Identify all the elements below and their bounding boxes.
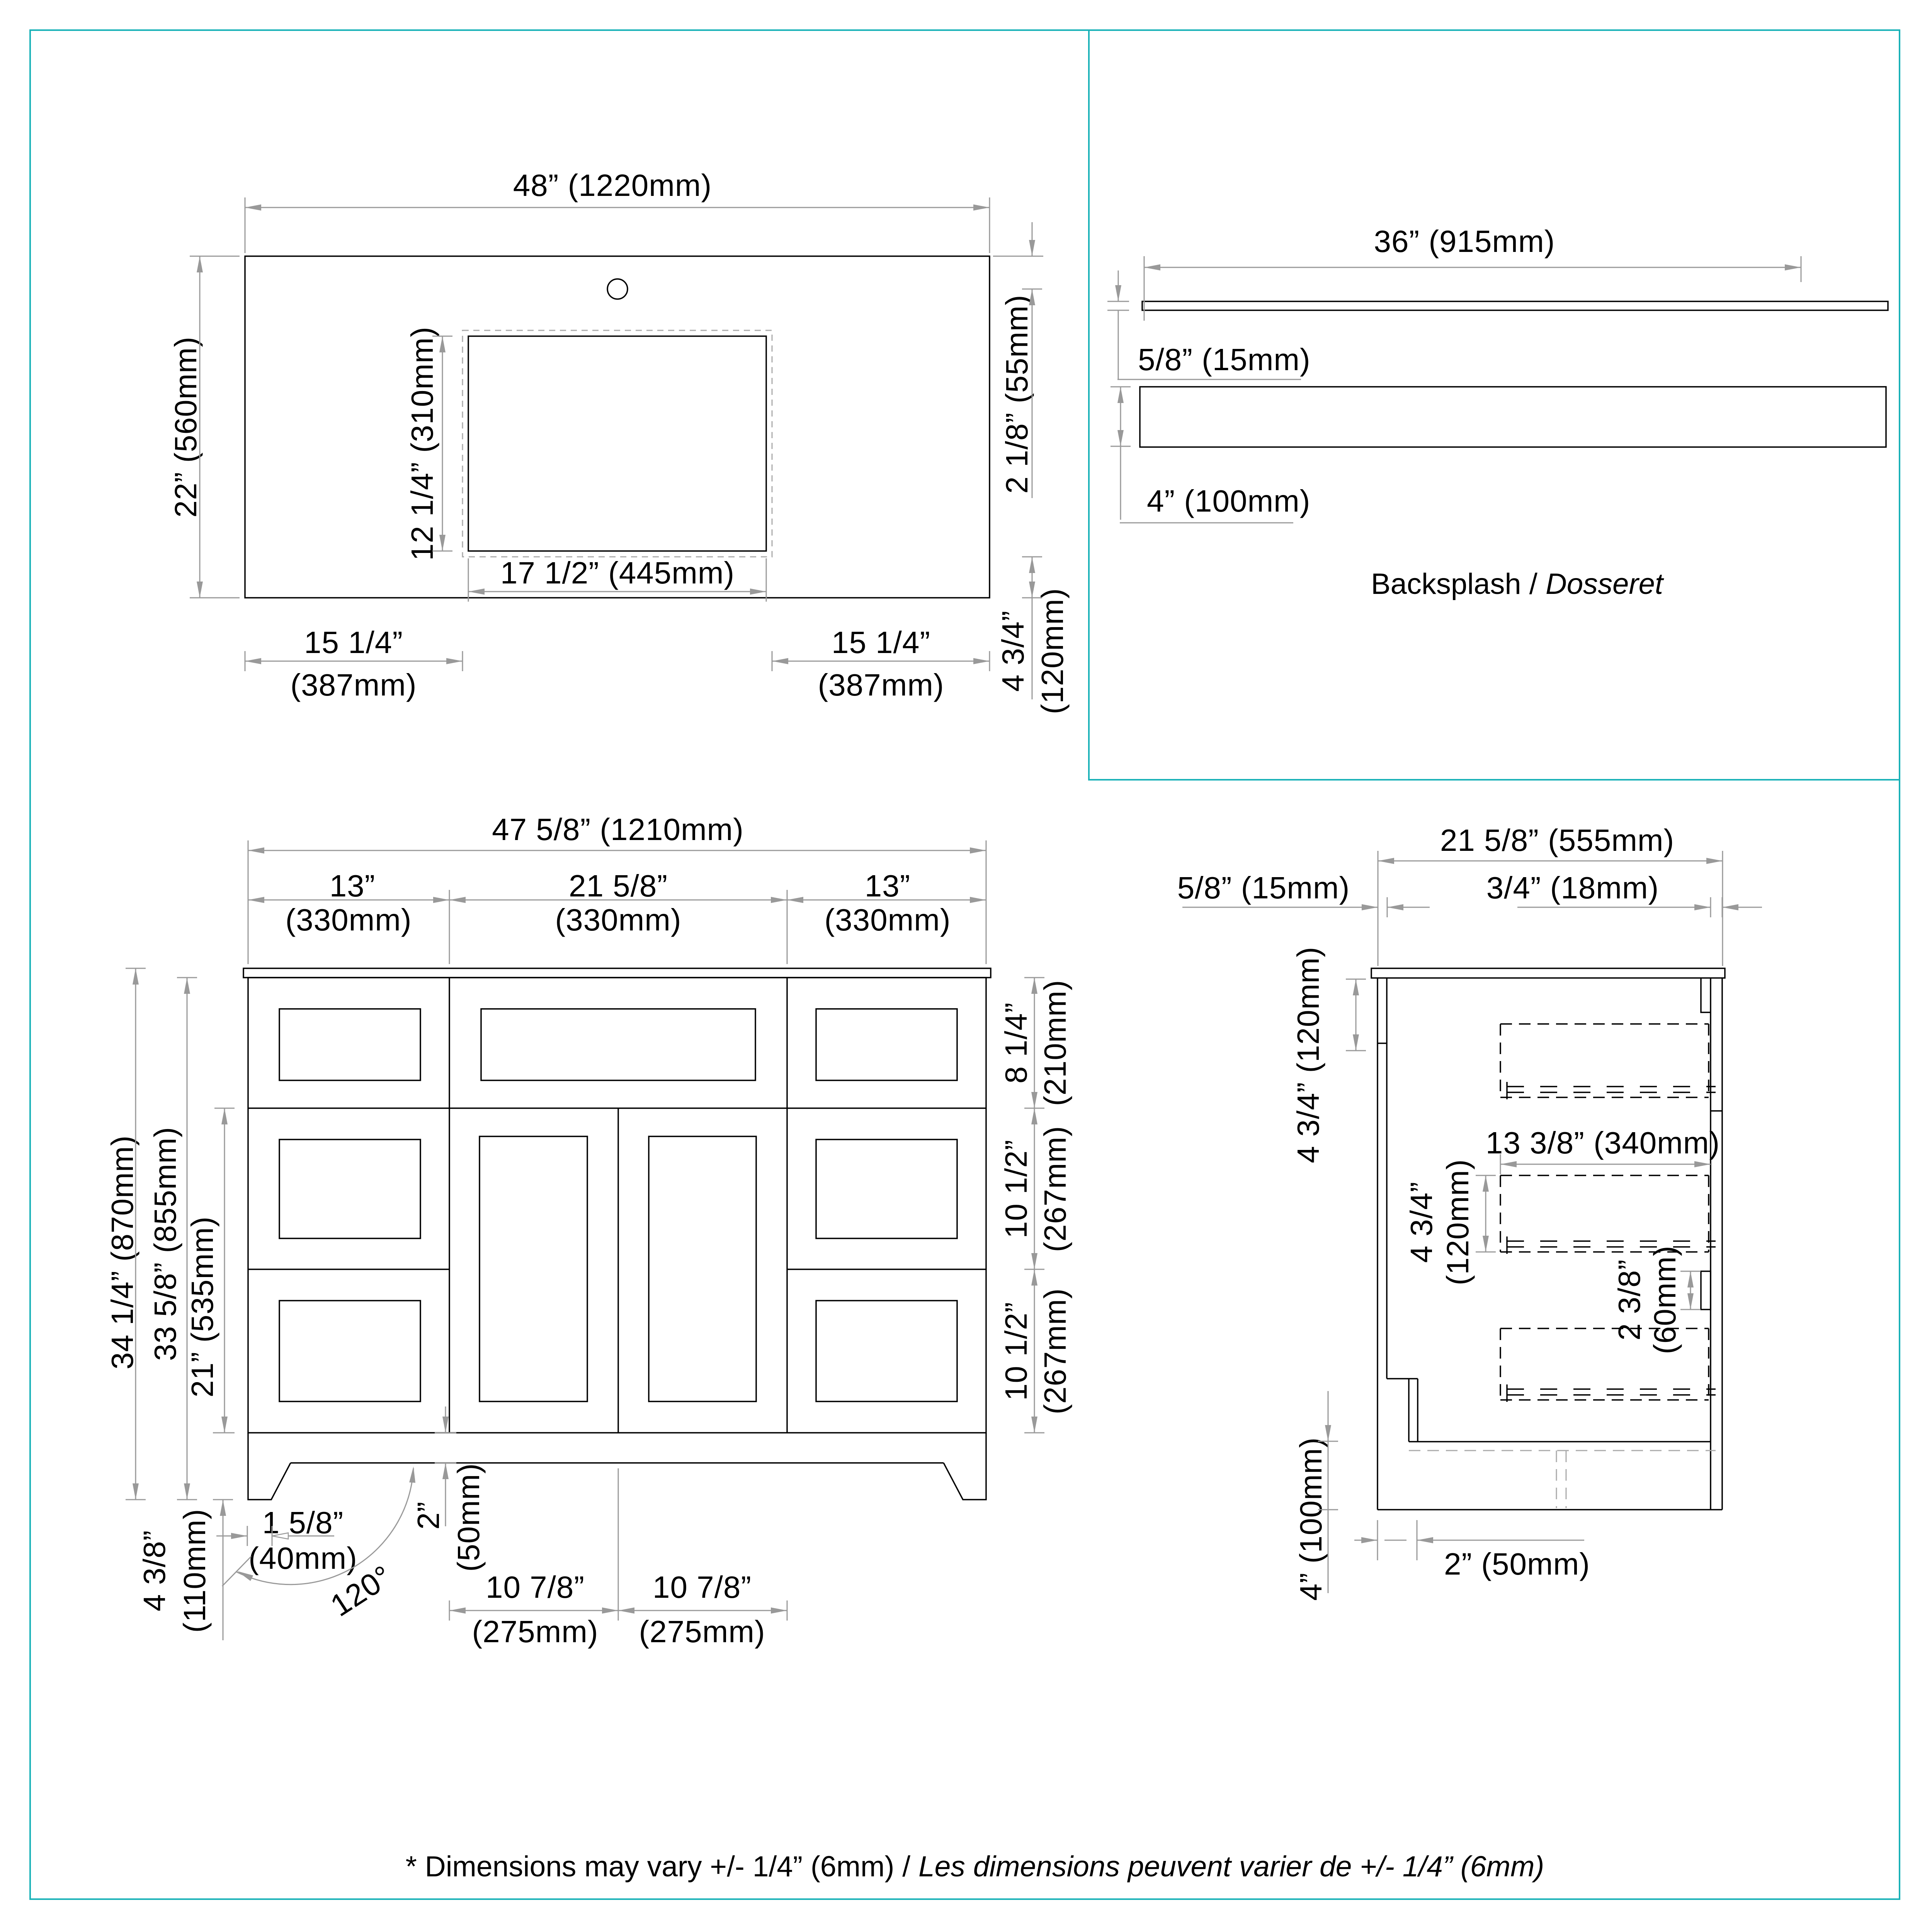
svg-text:2 3/8”: 2 3/8”	[1612, 1259, 1646, 1341]
svg-text:36” (915mm): 36” (915mm)	[1374, 224, 1555, 259]
svg-text:15 1/4”: 15 1/4”	[304, 625, 403, 660]
svg-text:13”: 13”	[330, 869, 376, 903]
svg-text:2 1/8” (55mm): 2 1/8” (55mm)	[1000, 294, 1034, 493]
svg-text:2” (50mm): 2” (50mm)	[1444, 1547, 1590, 1581]
svg-text:13”: 13”	[865, 869, 911, 903]
svg-text:(110mm): (110mm)	[177, 1509, 212, 1633]
svg-text:(387mm): (387mm)	[290, 668, 417, 702]
svg-text:8 1/4”: 8 1/4”	[999, 1002, 1033, 1084]
svg-text:(60mm): (60mm)	[1648, 1245, 1682, 1354]
svg-text:47 5/8” (1210mm): 47 5/8” (1210mm)	[492, 812, 744, 847]
svg-text:48” (1220mm): 48” (1220mm)	[513, 168, 712, 202]
svg-text:4 3/4” (120mm): 4 3/4” (120mm)	[1291, 947, 1325, 1163]
svg-text:2”: 2”	[411, 1501, 446, 1529]
svg-text:(120mm): (120mm)	[1035, 588, 1070, 714]
svg-text:* Dimensions may vary +/- 1/4”: * Dimensions may vary +/- 1/4” (6mm) / L…	[406, 1850, 1544, 1883]
svg-text:17 1/2” (445mm): 17 1/2” (445mm)	[500, 556, 735, 590]
svg-text:13 3/8” (340mm): 13 3/8” (340mm)	[1486, 1126, 1720, 1160]
svg-text:4” (100mm): 4” (100mm)	[1294, 1437, 1328, 1600]
svg-text:(50mm): (50mm)	[451, 1463, 486, 1572]
svg-text:(275mm): (275mm)	[639, 1614, 765, 1649]
svg-text:4 3/8”: 4 3/8”	[137, 1530, 172, 1612]
svg-text:1 5/8”: 1 5/8”	[262, 1505, 344, 1540]
svg-text:(330mm): (330mm)	[555, 903, 681, 937]
svg-text:(267mm): (267mm)	[1038, 1126, 1072, 1252]
svg-text:5/8” (15mm): 5/8” (15mm)	[1177, 871, 1350, 905]
svg-text:(387mm): (387mm)	[818, 668, 944, 702]
svg-text:12 1/4” (310mm): 12 1/4” (310mm)	[405, 327, 439, 561]
svg-text:(40mm): (40mm)	[248, 1541, 357, 1575]
svg-text:(267mm): (267mm)	[1038, 1288, 1072, 1414]
svg-text:5/8” (15mm): 5/8” (15mm)	[1138, 342, 1311, 377]
svg-text:15 1/4”: 15 1/4”	[832, 625, 930, 660]
svg-text:34 1/4” (870mm): 34 1/4” (870mm)	[105, 1135, 139, 1369]
svg-text:(275mm): (275mm)	[472, 1614, 598, 1649]
svg-text:21 5/8”: 21 5/8”	[569, 869, 668, 903]
svg-text:10 1/2”: 10 1/2”	[999, 1139, 1033, 1238]
svg-text:10 7/8”: 10 7/8”	[653, 1570, 752, 1604]
svg-text:4” (100mm): 4” (100mm)	[1147, 484, 1310, 518]
svg-text:4 3/4”: 4 3/4”	[1404, 1182, 1439, 1263]
svg-text:21” (535mm): 21” (535mm)	[185, 1216, 219, 1398]
svg-text:33 5/8” (855mm): 33 5/8” (855mm)	[148, 1127, 182, 1361]
svg-text:21 5/8” (555mm): 21 5/8” (555mm)	[1440, 823, 1674, 857]
svg-text:10 1/2”: 10 1/2”	[999, 1302, 1033, 1401]
svg-text:(210mm): (210mm)	[1038, 980, 1072, 1106]
svg-text:(330mm): (330mm)	[285, 903, 412, 937]
svg-text:(330mm): (330mm)	[824, 903, 951, 937]
svg-text:4 3/4”: 4 3/4”	[996, 611, 1030, 692]
svg-text:(120mm): (120mm)	[1440, 1159, 1475, 1285]
svg-text:10 7/8”: 10 7/8”	[486, 1570, 585, 1604]
svg-text:Backsplash / Dosseret: Backsplash / Dosseret	[1371, 568, 1664, 600]
svg-text:22” (560mm): 22” (560mm)	[168, 337, 203, 518]
svg-text:3/4” (18mm): 3/4” (18mm)	[1486, 871, 1659, 905]
